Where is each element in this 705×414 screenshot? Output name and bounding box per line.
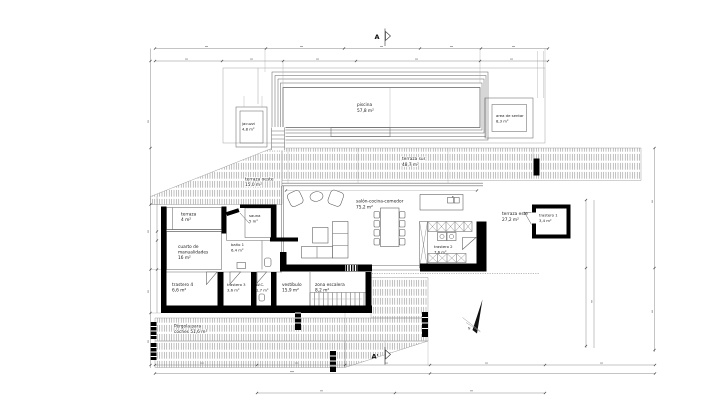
label-bano-1: baño 1 <box>231 242 245 247</box>
appliances <box>438 233 457 241</box>
section-label-bottom: A' <box>372 353 379 361</box>
hatch-pergola-left <box>155 341 345 368</box>
wall-pier <box>534 159 540 176</box>
rug <box>313 228 329 244</box>
salon-window-south <box>282 183 483 186</box>
label-terraza: terraza <box>181 212 197 218</box>
room-terraza-outline <box>167 208 222 230</box>
label-cuarto-1: cuarto de <box>178 244 199 250</box>
label-jacuzzi-area: 4,8 m² <box>242 127 255 132</box>
label-terraza-oeste: terraza oeste <box>245 177 274 183</box>
label-cuarto-2: manualidades <box>178 250 209 256</box>
label-terraza-este-area: 27,2 m² <box>502 217 519 223</box>
back-window <box>372 266 420 271</box>
wc-toilet-icon <box>259 294 265 301</box>
kitchen-cabinet-tall <box>420 222 428 269</box>
label-zona-escalera-area: 8,2 m² <box>315 288 329 294</box>
kitchen <box>420 195 477 269</box>
kitchen-cabinets-top <box>428 222 472 232</box>
hatch-terraza-sur <box>282 148 641 181</box>
stairs <box>310 293 366 306</box>
entry-door-leaf <box>226 208 240 216</box>
label-wc-area: 1,7 m² <box>256 288 269 293</box>
terraza-window-sill <box>167 230 222 232</box>
label-terraza-area: 4 m² <box>181 217 191 223</box>
label-vestibulo-area: 15,9 m² <box>282 288 299 294</box>
label-trastero-3-area: 3,6 m² <box>227 288 240 293</box>
seating-area <box>485 51 544 138</box>
room-labels: piscina 57,8 m² jacuzzi 4,8 m² area de s… <box>172 102 558 335</box>
kitchen-door-swing <box>463 238 477 250</box>
pool-ladder <box>271 127 286 151</box>
label-terraza-este: terraza este <box>502 211 528 217</box>
label-pergola-2: coches 51,6 m² <box>174 329 207 335</box>
label-wc: W.C. <box>256 282 264 287</box>
pool-edge-4 <box>281 83 483 130</box>
label-trastero-4-area: 6,6 m² <box>172 288 186 294</box>
label-trastero-1-area: 3,4 m² <box>539 218 552 223</box>
north-label: N <box>468 327 471 331</box>
label-cuarto-area: 16 m² <box>178 255 191 261</box>
label-piscina-area: 57,8 m² <box>357 108 374 114</box>
sink-icon <box>237 263 246 269</box>
hatch-areas <box>151 148 642 368</box>
floor-plan-drawing: A A' N piscina 57,8 m² jacuzzi 4,8 m² ar… <box>0 0 705 414</box>
dining-table-set <box>374 208 405 247</box>
salon-door-striped <box>345 265 358 271</box>
pool-edge-3 <box>278 79 484 133</box>
label-sauna-area: 5 m² <box>249 219 258 224</box>
hatch-terraza-oeste <box>151 148 283 205</box>
sink-icon <box>448 198 454 204</box>
label-bano-1-area: 6,4 m² <box>231 248 244 253</box>
label-terraza-oeste-area: 15,0 m² <box>245 182 262 188</box>
label-trastero-1: trastero 1 <box>539 213 558 218</box>
label-pergola-1: Pérgola para <box>174 323 201 330</box>
hatch-pergola-column <box>371 278 428 319</box>
armchair <box>327 189 345 207</box>
label-trastero-2-area: 7,6 m² <box>434 250 447 255</box>
label-terraza-sur-area: 48,7 m² <box>402 162 419 168</box>
label-trastero-2: trastero 2 <box>434 244 453 249</box>
pool-complex <box>223 51 545 151</box>
label-trastero-4: trastero 4 <box>172 282 193 288</box>
label-salon-area: 75,2 m² <box>356 205 373 211</box>
north-arrow-icon: N <box>463 300 483 334</box>
kitchen-island <box>420 195 463 211</box>
kitchen-cabinets-bottom <box>428 254 466 263</box>
pool-bench <box>331 128 390 137</box>
coffee-table <box>309 191 323 203</box>
label-terraza-sur: terraza sur <box>402 156 426 162</box>
label-sauna: sauna <box>249 213 260 218</box>
pool-water <box>283 88 480 128</box>
label-salon: salón-cocina-comedor <box>356 198 404 205</box>
armchair <box>286 189 304 207</box>
section-marker-a-top: A <box>375 29 391 47</box>
label-jacuzzi: jacuzzi <box>241 121 255 126</box>
label-piscina: piscina <box>357 102 372 108</box>
floor-plan-page: A A' N piscina 57,8 m² jacuzzi 4,8 m² ar… <box>0 0 705 414</box>
label-trastero-3: trastero 3 <box>227 282 246 287</box>
label-area-de-sentar: area de sentar <box>496 113 524 118</box>
label-vestibulo: vestíbulo <box>282 281 302 288</box>
label-zona-escalera: zona escalera <box>315 282 345 288</box>
label-area-de-sentar-area: 8,3 m² <box>496 119 509 124</box>
section-flag-icon <box>386 32 391 41</box>
section-label-top: A <box>375 33 380 41</box>
toilet-icon <box>265 258 272 267</box>
